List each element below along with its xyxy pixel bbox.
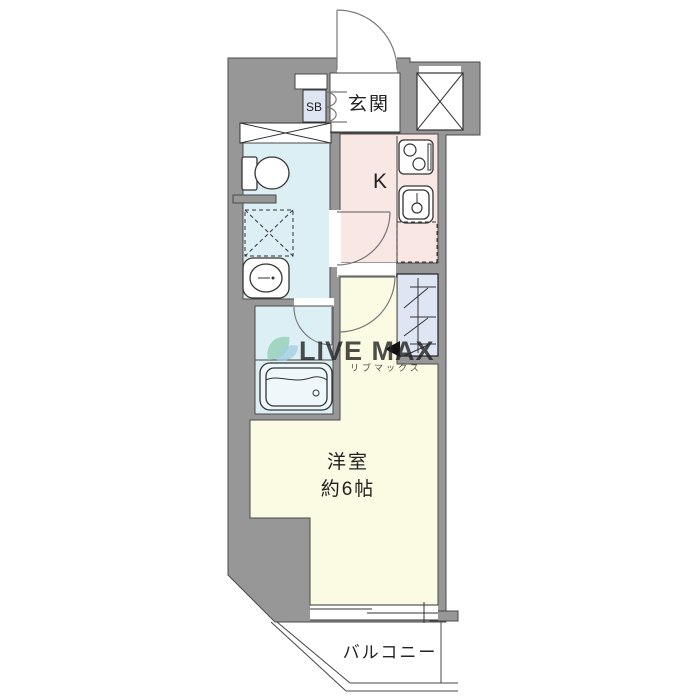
- toilet-wall-stub: [233, 195, 276, 203]
- bathtub-inner-icon: [266, 368, 327, 406]
- main-room-label-2: 約6帖: [321, 478, 376, 500]
- kitchen-label: K: [373, 170, 387, 193]
- sink-basin-icon: [403, 190, 429, 219]
- main-room-door-opening: [337, 263, 396, 277]
- entrance-niche: [295, 74, 327, 89]
- balcony-rail-diag-outer: [271, 622, 346, 691]
- watermark-subtext: リブマックス: [350, 362, 422, 373]
- main-room-label-1: 洋室: [327, 451, 369, 473]
- balcony-label: バルコニー: [343, 643, 438, 662]
- washroom-door-opening: [329, 210, 341, 267]
- elevator-door-slot: [419, 66, 461, 73]
- entrance-label: 玄関: [348, 93, 390, 115]
- washbasin-drain-icon: [272, 277, 275, 280]
- entrance-door-opening: [337, 54, 397, 74]
- toilet-bowl-icon: [255, 157, 289, 189]
- floorplan-image: LIVE MAX リブマックス 玄関 SB K 洋室 約6帖 バルコニー: [0, 0, 700, 700]
- balcony-rail-diag-inner: [277, 622, 350, 683]
- floorplan-svg: LIVE MAX リブマックス 玄関 SB K 洋室 約6帖 バルコニー: [0, 0, 700, 700]
- shoe-box-label: SB: [306, 100, 322, 114]
- watermark-text: LIVE MAX: [299, 336, 435, 366]
